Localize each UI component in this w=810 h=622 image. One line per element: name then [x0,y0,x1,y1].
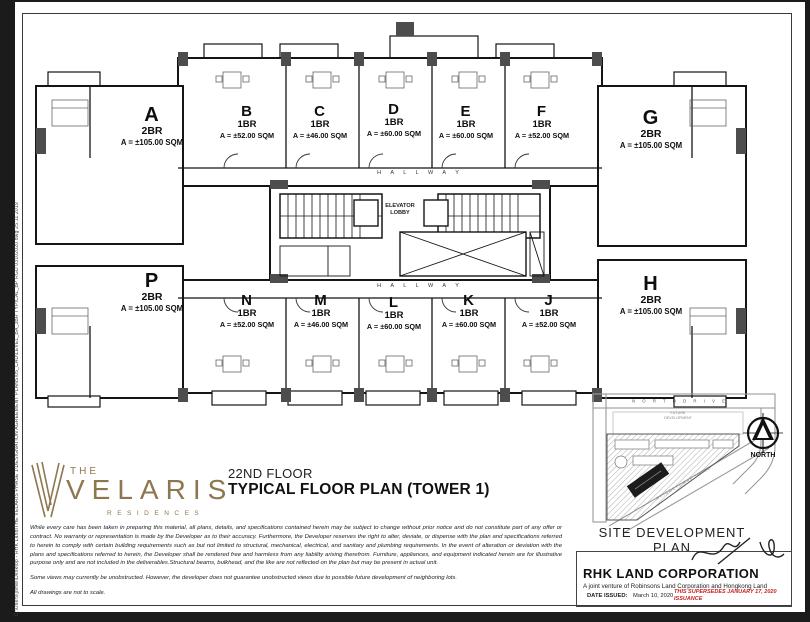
unit-area: A = ±60.00 SQM [367,129,421,139]
unit-letter: A [121,106,183,125]
unit-letter: D [367,102,421,117]
disclaimer-block: While every care has been taken in prepa… [30,524,562,598]
unit-area: A = ±46.00 SQM [294,320,348,330]
unit-area: A = ±105.00 SQM [121,304,183,314]
unit-label-f: F 1BR A = ±52.00 SQM [515,104,569,141]
unit-type: 1BR [294,308,348,320]
unit-type: 1BR [293,119,347,131]
north-compass-icon [738,412,788,454]
elevator-lobby-line1: ELEVATOR [385,203,415,210]
signature-icon [688,534,788,570]
unit-area: A = ±60.00 SQM [367,322,421,332]
unit-type: 1BR [522,308,576,320]
unit-label-c: C 1BR A = ±46.00 SQM [293,104,347,141]
unit-letter: B [220,104,274,119]
supersedes-line2: ISSUANCE [674,596,777,603]
unit-type: 1BR [515,119,569,131]
unit-area: A = ±52.00 SQM [220,131,274,141]
unit-type: 2BR [620,128,682,141]
unit-type: 2BR [121,125,183,138]
plot-stamp-filepath: C:\Users\jomel\Desktop - RHK Land\THE VE… [14,286,20,616]
scanned-floor-plan-sheet: C:\Users\jomel\Desktop - RHK Land\THE VE… [0,0,810,622]
disclaimer-paragraph-1: While every care has been taken in prepa… [30,524,562,568]
elevator-lobby-line2: LOBBY [385,210,415,217]
unit-type: 1BR [220,308,274,320]
unit-label-m: M 1BR A = ±46.00 SQM [294,293,348,330]
unit-letter: P [121,272,183,291]
future-line2: DEVELOPMENT [664,416,692,421]
unit-area: A = ±60.00 SQM [442,320,496,330]
unit-letter: F [515,104,569,119]
hallway-label-bottom: H A L L W A Y [377,283,463,289]
unit-label-n: N 1BR A = ±52.00 SQM [220,293,274,330]
unit-area: A = ±46.00 SQM [293,131,347,141]
disclaimer-paragraph-3: All drawings are not to scale. [30,589,562,598]
unit-type: 1BR [367,117,421,129]
unit-letter: N [220,293,274,308]
date-issued-value: March 10, 2020 [633,593,673,599]
unit-label-h: H 2BR A = ±105.00 SQM [620,275,682,317]
north-drive-label: N O R T H D R I V E [632,399,728,404]
unit-letter: H [620,275,682,294]
supersedes-note: THIS SUPERSEDES JANUARY 17, 2020 ISSUANC… [674,589,777,603]
plan-title: TYPICAL FLOOR PLAN (TOWER 1) [228,481,490,499]
elevator-cab-left [354,200,378,226]
unit-type: 1BR [442,308,496,320]
unit-area: A = ±105.00 SQM [620,141,682,151]
brand-residences: RESIDENCES [107,510,204,517]
company-name: RHK LAND CORPORATION [583,566,759,581]
supersedes-line1: THIS SUPERSEDES JANUARY 17, 2020 [674,589,777,596]
velaris-v-logo-icon [30,461,68,519]
brand-velaris: VELARIS [66,474,233,506]
date-issued-label: DATE ISSUED: [587,593,627,599]
unit-area: A = ±60.00 SQM [439,131,493,141]
unit-letter: C [293,104,347,119]
disclaimer-paragraph-2: Some views may currently be unobstructed… [30,574,562,583]
elevator-cab-right [424,200,448,226]
floor-label: 22ND FLOOR [228,466,313,481]
hallway-label-top: H A L L W A Y [377,170,463,176]
unit-type: 1BR [220,119,274,131]
unit-label-j: J 1BR A = ±52.00 SQM [522,293,576,330]
unit-label-g: G 2BR A = ±105.00 SQM [620,109,682,151]
unit-letter: M [294,293,348,308]
unit-label-e: E 1BR A = ±60.00 SQM [439,104,493,141]
unit-area: A = ±52.00 SQM [522,320,576,330]
unit-letter: J [522,293,576,308]
unit-label-d: D 1BR A = ±60.00 SQM [367,102,421,139]
unit-area: A = ±105.00 SQM [620,307,682,317]
unit-label-b: B 1BR A = ±52.00 SQM [220,104,274,141]
unit-letter: L [367,295,421,310]
unit-type: 1BR [367,310,421,322]
unit-label-l: L 1BR A = ±60.00 SQM [367,295,421,332]
future-development-label: FUTURE DEVELOPMENT [664,411,692,421]
unit-type: 2BR [620,294,682,307]
unit-type: 2BR [121,291,183,304]
unit-type: 1BR [439,119,493,131]
unit-area: A = ±52.00 SQM [515,131,569,141]
elevator-lobby-label: ELEVATOR LOBBY [385,203,415,217]
unit-label-k: K 1BR A = ±60.00 SQM [442,293,496,330]
north-compass-label: NORTH [748,452,778,459]
unit-area: A = ±52.00 SQM [220,320,274,330]
unit-letter: K [442,293,496,308]
unit-label-a: A 2BR A = ±105.00 SQM [121,106,183,148]
unit-letter: E [439,104,493,119]
unit-letter: G [620,109,682,128]
unit-label-p: P 2BR A = ±105.00 SQM [121,272,183,314]
unit-area: A = ±105.00 SQM [121,138,183,148]
